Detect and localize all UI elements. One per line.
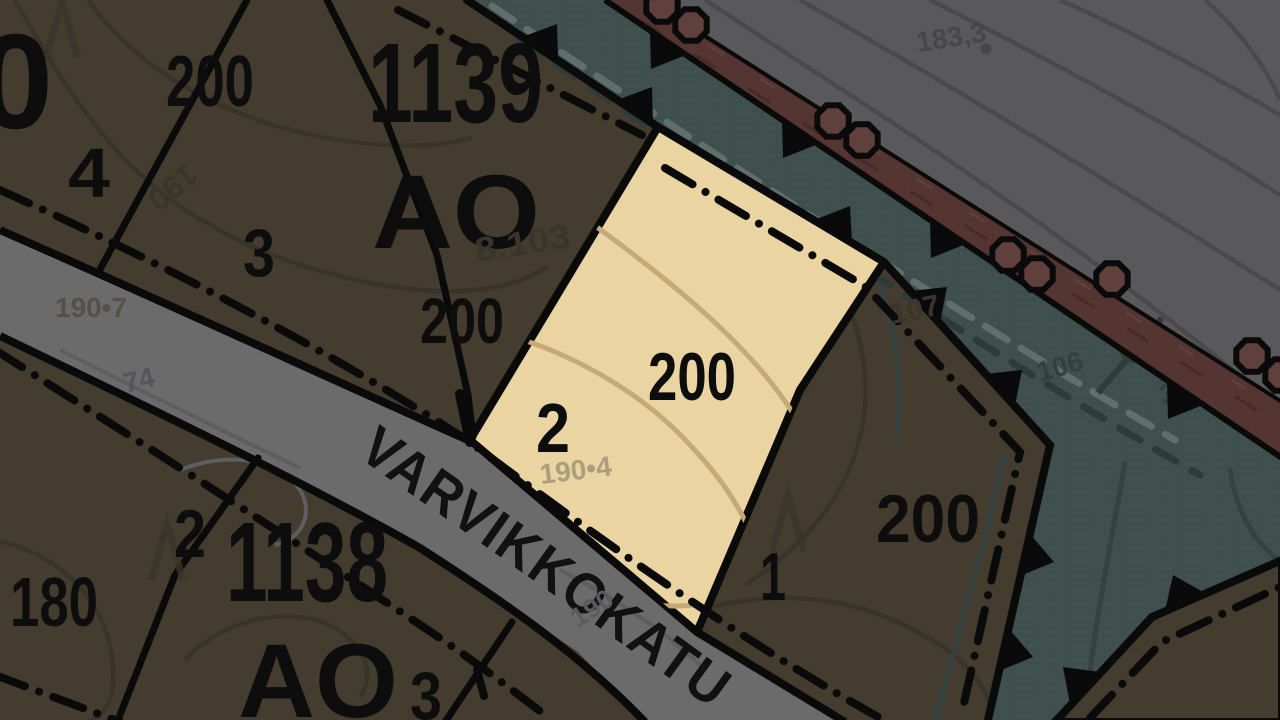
label-block-1138: 1138 bbox=[226, 499, 388, 625]
label-plot-3-1138: 3 bbox=[410, 658, 442, 720]
label-zone-ao-1138: AO bbox=[238, 623, 398, 720]
label-partial-number: 0 bbox=[0, 6, 53, 157]
spot-elevation-dot bbox=[981, 44, 992, 55]
label-block-1139: 1139 bbox=[368, 20, 543, 146]
label-area-200-nw: 200 bbox=[166, 42, 254, 122]
zoning-map-canvas[interactable]: 106 36 bbox=[0, 0, 1280, 720]
zoning-map: 106 36 bbox=[0, 0, 1280, 720]
label-plot-2-1138: 2 bbox=[174, 496, 206, 572]
label-area-200-east: 200 bbox=[876, 481, 980, 557]
label-plot-3-1139: 3 bbox=[243, 215, 275, 291]
tree-circle-icon bbox=[1096, 263, 1127, 294]
label-plot-4: 4 bbox=[68, 134, 110, 212]
label-area-200-1139: 200 bbox=[420, 285, 504, 357]
tree-circle-icon bbox=[1021, 258, 1052, 289]
tree-circle-icon bbox=[675, 9, 706, 40]
label-area-180: 180 bbox=[10, 563, 98, 641]
label-elev-190-7: 190•7 bbox=[55, 292, 127, 323]
tree-circle-icon bbox=[1265, 359, 1280, 390]
tree-circle-icon bbox=[846, 124, 877, 155]
label-area-200-highlight: 200 bbox=[648, 339, 736, 415]
label-plot-1-east: 1 bbox=[760, 539, 786, 615]
